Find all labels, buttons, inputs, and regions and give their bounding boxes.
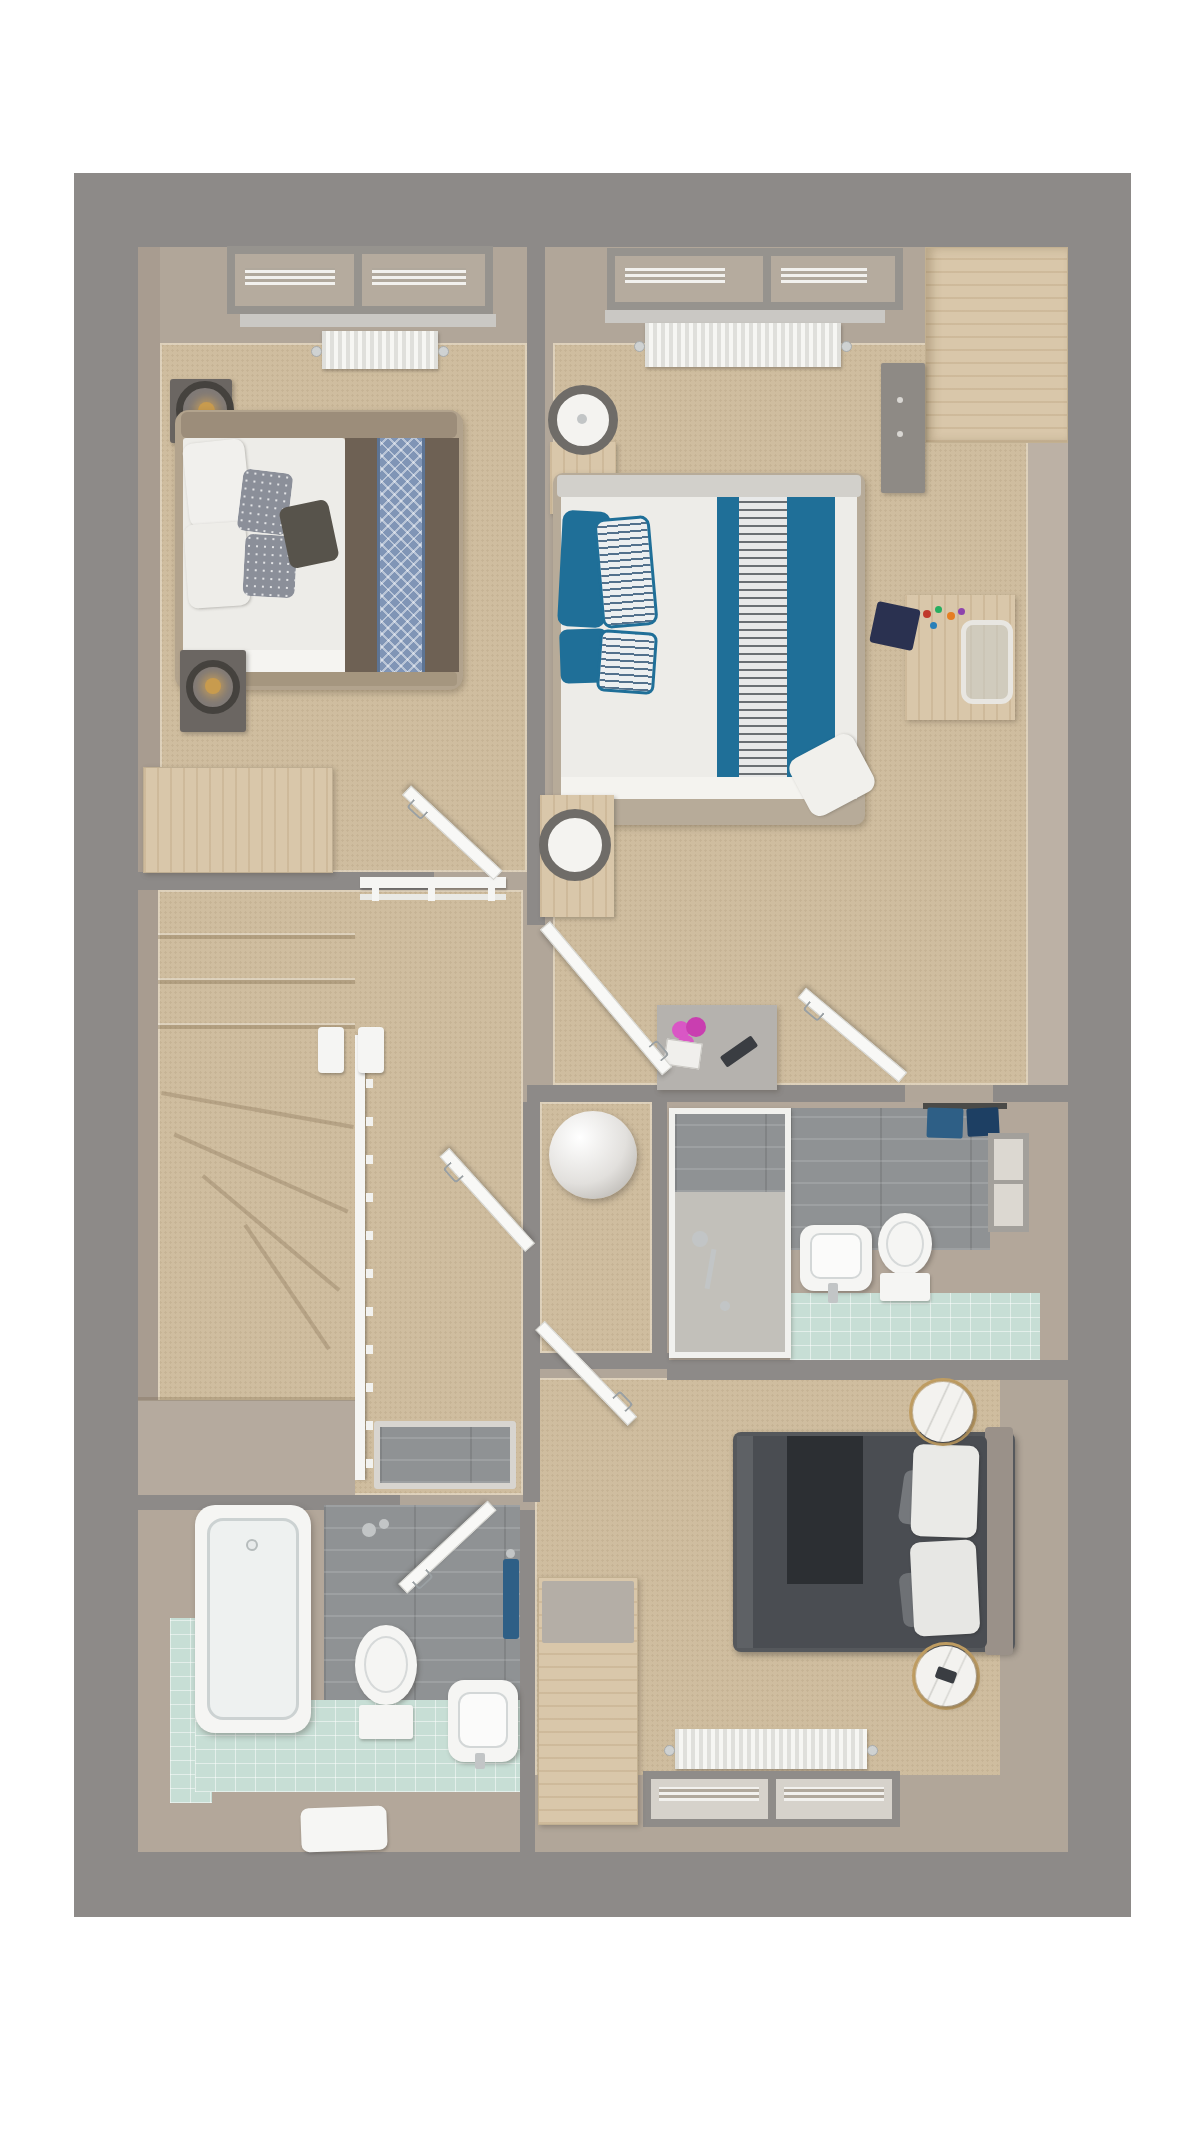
bed2-pillow-striped <box>596 629 658 695</box>
handrail-post <box>488 877 495 901</box>
bed3-throw <box>787 1436 863 1584</box>
shower-glass <box>675 1192 785 1352</box>
lamp-stem <box>577 414 587 424</box>
stair-newel-post <box>318 1027 344 1073</box>
bedroom1-window-sill <box>240 314 496 327</box>
bathroom-sink-bowl <box>458 1692 508 1748</box>
bath-mixer-tap <box>379 1519 389 1529</box>
stair-balustrade-rail <box>355 1035 365 1480</box>
landing-tile-floor <box>380 1427 510 1483</box>
bedroom3-window-blind <box>659 1787 759 1801</box>
wall-landing-cupboard <box>523 1102 540 1502</box>
wall-bathroom-bed3 <box>520 1510 535 1852</box>
stair-tread-edge <box>158 935 355 939</box>
stair-newel-post <box>358 1027 384 1073</box>
shower-head <box>692 1231 708 1247</box>
towel <box>926 1107 963 1138</box>
bed3-sheet-edge <box>737 1436 753 1648</box>
towel <box>503 1559 519 1639</box>
stair-half-landing <box>138 1400 355 1495</box>
bed2-pillow-striped <box>593 515 658 629</box>
stair-tread-edge <box>158 980 355 984</box>
chest-handle <box>897 397 903 403</box>
bed1-runner <box>377 438 425 672</box>
bedroom3-desk-top <box>542 1581 634 1643</box>
chest-handle <box>897 431 903 437</box>
wall-cupboard-south <box>535 1353 669 1369</box>
bed3-pillow <box>910 1444 979 1538</box>
bedroom3-radiator <box>675 1729 867 1769</box>
bathtub-drain <box>246 1539 258 1551</box>
shower-tile <box>675 1114 785 1192</box>
ensuite-mint-floor <box>790 1293 1040 1360</box>
ring-lamp <box>539 809 611 881</box>
stair-balustrade-spindles <box>366 1041 373 1477</box>
master-window-blind <box>625 268 725 283</box>
bed1-headboard <box>181 412 457 438</box>
ensuite-sink-tap <box>828 1283 838 1303</box>
ensuite-toilet-cistern <box>880 1273 930 1301</box>
bathroom-toilet-cistern <box>359 1705 413 1739</box>
handrail-post <box>372 877 379 901</box>
ensuite-sink-bowl <box>810 1233 862 1279</box>
wall-ensuite-south <box>667 1360 1068 1380</box>
navy-bag <box>869 601 921 651</box>
master-window-sill <box>605 310 885 323</box>
bath-mat <box>300 1806 387 1853</box>
master-chest <box>881 363 925 493</box>
cupboard-ball <box>549 1111 637 1199</box>
bathroom-sink-tap <box>475 1753 485 1769</box>
page-background <box>0 0 1200 2133</box>
bathroom-tiled-wall <box>324 1505 520 1705</box>
master-radiator <box>645 323 841 367</box>
handrail-post <box>428 877 435 901</box>
cosmetic-item <box>958 608 965 615</box>
bed1-pillow <box>183 521 251 609</box>
cosmetic-item <box>930 622 937 629</box>
bedroom1-window-blind <box>372 268 466 285</box>
shower-control <box>720 1301 730 1311</box>
towel-hook <box>506 1549 515 1558</box>
cosmetic-item <box>947 612 955 620</box>
cosmetic-item <box>923 610 931 618</box>
bed3-pillow <box>910 1539 981 1636</box>
floor-plan <box>74 173 1131 1917</box>
bedroom1-radiator <box>322 331 438 369</box>
ensuite-toilet-seat <box>886 1221 924 1267</box>
master-window-blind <box>781 268 867 283</box>
bedroom1-window-blind <box>245 268 335 285</box>
lamp-bulb <box>205 678 221 694</box>
half-landing-edge <box>138 1397 355 1401</box>
bathroom-toilet-seat <box>364 1636 408 1693</box>
bed2-headboard <box>557 475 861 497</box>
bedroom3-window-blind <box>784 1787 884 1801</box>
master-wardrobe <box>925 247 1068 443</box>
bed2-stripe <box>717 497 739 799</box>
wall-master-south-right <box>993 1085 1068 1102</box>
desk-flowers <box>686 1017 706 1037</box>
bath-mixer-tap <box>362 1523 376 1537</box>
bedroom1-dresser <box>143 767 333 873</box>
dressing-mirror <box>961 620 1013 704</box>
bed2-pinstripe-band <box>739 497 787 799</box>
cosmetic-item <box>935 606 942 613</box>
bed3-headboard <box>985 1427 1013 1655</box>
wall-cupboard-ensuite <box>652 1102 667 1360</box>
ensuite-window-mullion <box>994 1180 1023 1184</box>
marble-side-table <box>913 1382 973 1442</box>
